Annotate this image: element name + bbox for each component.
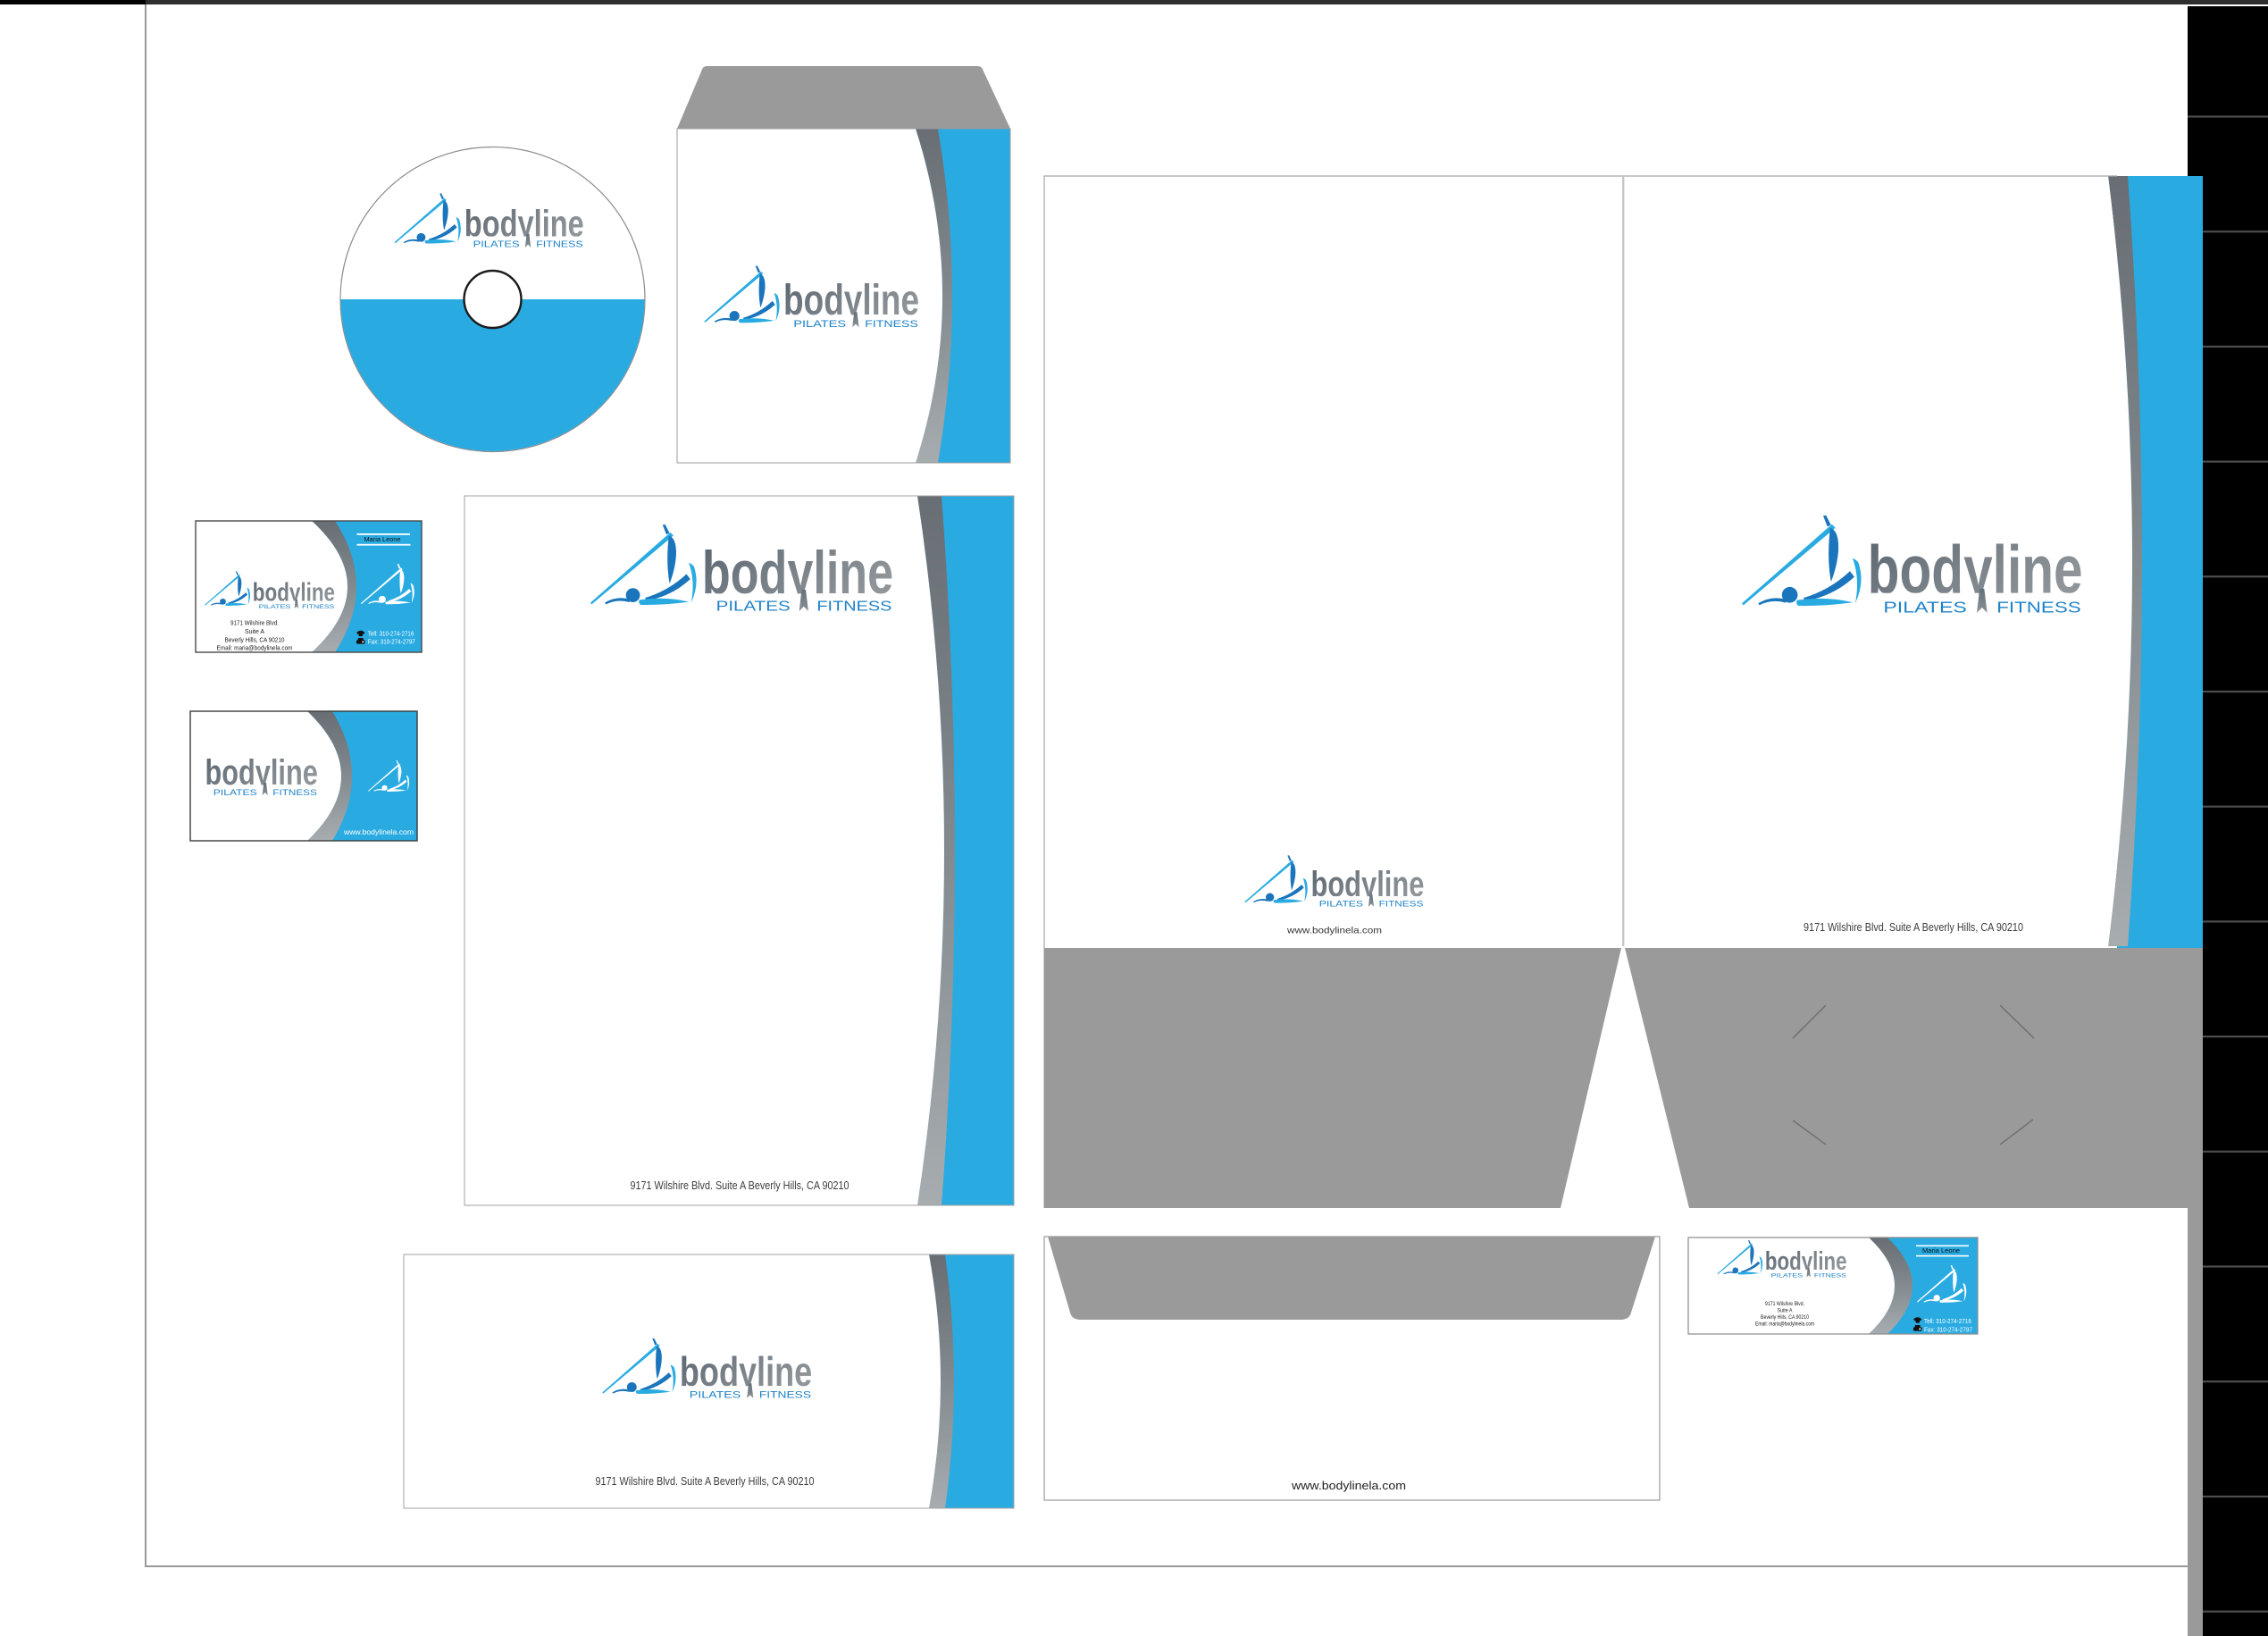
svg-text:Email: maria@bodylinela.com: Email: maria@bodylinela.com — [1755, 1321, 1814, 1328]
svg-text:Tell: 310-274-2716: Tell: 310-274-2716 — [368, 630, 414, 638]
svg-text:www.bodylinela.com: www.bodylinela.com — [1286, 927, 1382, 936]
svg-text:Maria Leone: Maria Leone — [1922, 1248, 1960, 1254]
svg-text:Tell: 310-274-2716: Tell: 310-274-2716 — [1924, 1319, 1971, 1325]
svg-text:Beverly Hills, CA 90210: Beverly Hills, CA 90210 — [1761, 1314, 1809, 1321]
svg-text:9171 Wilshire Blvd.: 9171 Wilshire Blvd. — [1765, 1301, 1804, 1307]
svg-text:Beverly Hills, CA 90210: Beverly Hills, CA 90210 — [225, 636, 285, 644]
svg-text:Suite A: Suite A — [245, 627, 264, 635]
svg-text:9171 Wilshire Blvd. Suite A Be: 9171 Wilshire Blvd. Suite A Beverly Hill… — [596, 1474, 815, 1488]
svg-text:Maria Leone: Maria Leone — [364, 535, 401, 543]
svg-text:Fax: 310-274-2797: Fax: 310-274-2797 — [1924, 1328, 1972, 1334]
svg-text:9171 Wilshire Blvd. Suite A Be: 9171 Wilshire Blvd. Suite A Beverly Hill… — [631, 1179, 849, 1192]
svg-text:Suite A: Suite A — [1778, 1308, 1794, 1314]
svg-text:9171 Wilshire Blvd.: 9171 Wilshire Blvd. — [230, 619, 279, 627]
svg-text:9171 Wilshire Blvd. Suite A Be: 9171 Wilshire Blvd. Suite A Beverly Hill… — [1804, 920, 2023, 934]
svg-text:Email: maria@bodylinela.com: Email: maria@bodylinela.com — [217, 644, 293, 652]
svg-text:www.bodylinela.com: www.bodylinela.com — [343, 827, 414, 836]
svg-text:Fax: 310-274-2797: Fax: 310-274-2797 — [368, 638, 415, 646]
svg-text:www.bodylinela.com: www.bodylinela.com — [1291, 1480, 1406, 1492]
